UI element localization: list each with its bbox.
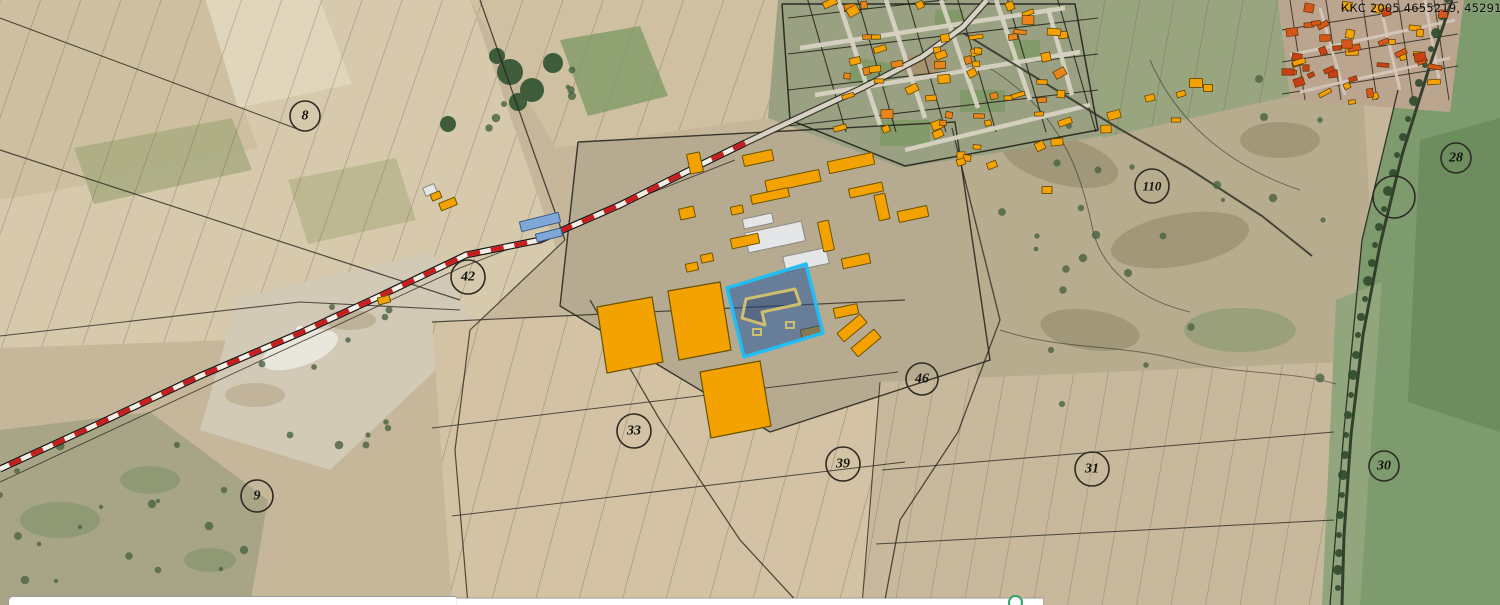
cadastre-satellite-map[interactable]: 8429333946110283130 — [0, 0, 1500, 605]
tree — [174, 442, 180, 448]
house — [863, 34, 872, 39]
house — [1008, 33, 1018, 40]
tree — [1187, 323, 1194, 330]
roadside-tree — [1352, 351, 1360, 359]
tree — [1079, 254, 1087, 262]
tree — [54, 579, 58, 583]
house — [1342, 40, 1353, 49]
roadside-tree — [1355, 332, 1361, 338]
tree — [14, 468, 20, 474]
roadside-tree — [1341, 451, 1349, 459]
tree — [125, 552, 132, 559]
tree — [383, 419, 389, 425]
roadside-tree — [1335, 585, 1341, 591]
roadside-tree — [1362, 296, 1368, 302]
parcel-number-label: 42 — [460, 270, 475, 285]
tree — [567, 86, 574, 93]
tree — [1160, 233, 1167, 240]
house — [926, 95, 937, 101]
house — [1282, 69, 1294, 76]
house — [1041, 52, 1052, 62]
house — [1333, 46, 1342, 51]
tree — [1213, 181, 1221, 189]
house — [1311, 20, 1320, 25]
tree — [156, 499, 160, 503]
house — [1414, 52, 1427, 62]
roadside-tree — [1335, 549, 1343, 557]
house — [973, 145, 981, 150]
house — [1037, 80, 1047, 85]
tree — [1078, 205, 1084, 211]
tree — [259, 361, 266, 368]
house — [881, 110, 893, 119]
house — [1366, 88, 1373, 97]
tree — [492, 114, 501, 123]
parcel-number-label: 46 — [914, 372, 929, 387]
orange-building — [1190, 79, 1203, 88]
industrial-parcel-orange — [597, 297, 663, 373]
tree — [386, 307, 393, 314]
house — [974, 48, 982, 55]
parcel-number-label: 39 — [835, 457, 850, 472]
tree — [335, 441, 344, 450]
house — [1348, 100, 1355, 105]
parcel-number-label: 28 — [1448, 151, 1463, 166]
house — [869, 65, 881, 73]
house — [1057, 90, 1065, 98]
house — [1320, 35, 1331, 42]
house — [843, 73, 850, 80]
tree — [1048, 347, 1054, 353]
tree — [221, 487, 227, 493]
parcel-number-label: 8 — [302, 109, 309, 124]
house — [1034, 112, 1043, 117]
tree — [1316, 374, 1325, 383]
parcel-number-label: 9 — [254, 489, 261, 504]
tree — [148, 500, 156, 508]
tree — [1320, 217, 1325, 222]
house — [1037, 97, 1047, 102]
parcel-number-label: 31 — [1084, 462, 1099, 477]
roadside-tree — [1375, 223, 1383, 231]
house — [1004, 96, 1012, 101]
house — [1022, 15, 1034, 24]
logo-ring-icon — [1008, 595, 1023, 605]
bottom-toolbar-edge[interactable] — [457, 598, 1043, 605]
tree — [99, 505, 103, 509]
tree — [1062, 265, 1070, 273]
house — [1171, 118, 1180, 122]
tree — [1255, 75, 1263, 83]
roadside-tree — [1336, 511, 1344, 519]
roadside-tree — [1409, 96, 1419, 106]
tree — [501, 101, 507, 107]
roadside-tree — [1431, 28, 1441, 38]
house — [938, 74, 951, 84]
house — [1345, 29, 1355, 39]
parcel-number-label: 33 — [626, 424, 641, 439]
tree — [519, 99, 525, 105]
tree — [1092, 231, 1100, 239]
coordinate-readout: ККС 2005 4655219, 452916 — [1341, 1, 1500, 15]
house — [940, 120, 947, 125]
roadside-tree — [1368, 259, 1376, 267]
house — [1304, 3, 1315, 13]
tree — [205, 522, 214, 531]
tree — [1143, 362, 1149, 368]
house — [1427, 79, 1440, 85]
tree — [1269, 194, 1277, 202]
tree — [78, 525, 82, 529]
tree — [1053, 159, 1060, 166]
house — [860, 1, 867, 9]
house — [1416, 29, 1423, 37]
house — [1101, 125, 1112, 133]
house — [1377, 63, 1389, 68]
tree — [37, 542, 42, 547]
tree — [365, 432, 370, 437]
house — [934, 61, 945, 69]
tree — [363, 442, 370, 449]
tree — [1095, 167, 1102, 174]
orange-building — [679, 206, 696, 220]
house — [1047, 28, 1061, 36]
tree — [345, 337, 350, 342]
tree — [329, 304, 335, 310]
bottom-left-panel-edge[interactable] — [8, 596, 459, 605]
tree — [1059, 401, 1065, 407]
house — [1051, 138, 1064, 146]
roadside-tree — [1336, 532, 1342, 538]
industrial-parcel-orange — [700, 361, 771, 438]
tree — [569, 67, 576, 74]
roadside-tree — [1338, 470, 1348, 480]
tree — [240, 546, 248, 554]
house — [1286, 28, 1298, 37]
tree — [1034, 247, 1039, 252]
tree — [485, 124, 492, 131]
roadside-tree — [1428, 46, 1434, 52]
tree — [1221, 198, 1225, 202]
roadside-tree — [1399, 133, 1407, 141]
tree — [1124, 269, 1132, 277]
roadside-tree — [1383, 186, 1393, 196]
tree — [1260, 113, 1268, 121]
roadside-tree — [1405, 116, 1411, 122]
house — [945, 111, 953, 118]
tree — [385, 425, 391, 431]
house — [872, 35, 881, 40]
parcel-number-label: 30 — [1376, 459, 1391, 474]
roadside-tree — [1372, 242, 1378, 248]
parcel-number-label: 110 — [1143, 179, 1162, 194]
roadside-tree — [1357, 313, 1365, 321]
tree — [311, 364, 317, 370]
tree — [1059, 286, 1066, 293]
house — [874, 79, 884, 83]
roadside-tree — [1333, 565, 1343, 575]
tree — [1317, 117, 1323, 123]
tree — [14, 532, 22, 540]
roadside-tree — [1348, 370, 1358, 380]
tree — [219, 567, 223, 571]
house — [940, 33, 950, 42]
roadside-tree — [1363, 276, 1373, 286]
house — [1303, 65, 1309, 72]
tree — [382, 314, 389, 321]
house — [1389, 39, 1396, 44]
house — [984, 120, 991, 127]
orange-building — [1042, 187, 1052, 194]
roadside-tree — [1381, 206, 1387, 212]
roadside-tree — [1394, 152, 1400, 158]
tree — [1129, 164, 1134, 169]
roadside-tree — [1339, 492, 1345, 498]
tree — [1034, 233, 1039, 238]
roadside-tree — [1343, 432, 1349, 438]
industrial-parcel-orange — [668, 282, 731, 360]
map-viewport[interactable]: 8429333946110283130 ККС 2005 4655219, 45… — [0, 0, 1500, 605]
house — [974, 114, 985, 119]
tree — [287, 432, 294, 439]
house — [972, 61, 980, 67]
tree — [155, 567, 162, 574]
roadside-tree — [1415, 79, 1423, 87]
orange-building — [1204, 85, 1213, 92]
roadside-tree — [1344, 411, 1352, 419]
tree — [21, 576, 30, 585]
tree — [998, 208, 1006, 216]
roadside-tree — [1348, 392, 1354, 398]
